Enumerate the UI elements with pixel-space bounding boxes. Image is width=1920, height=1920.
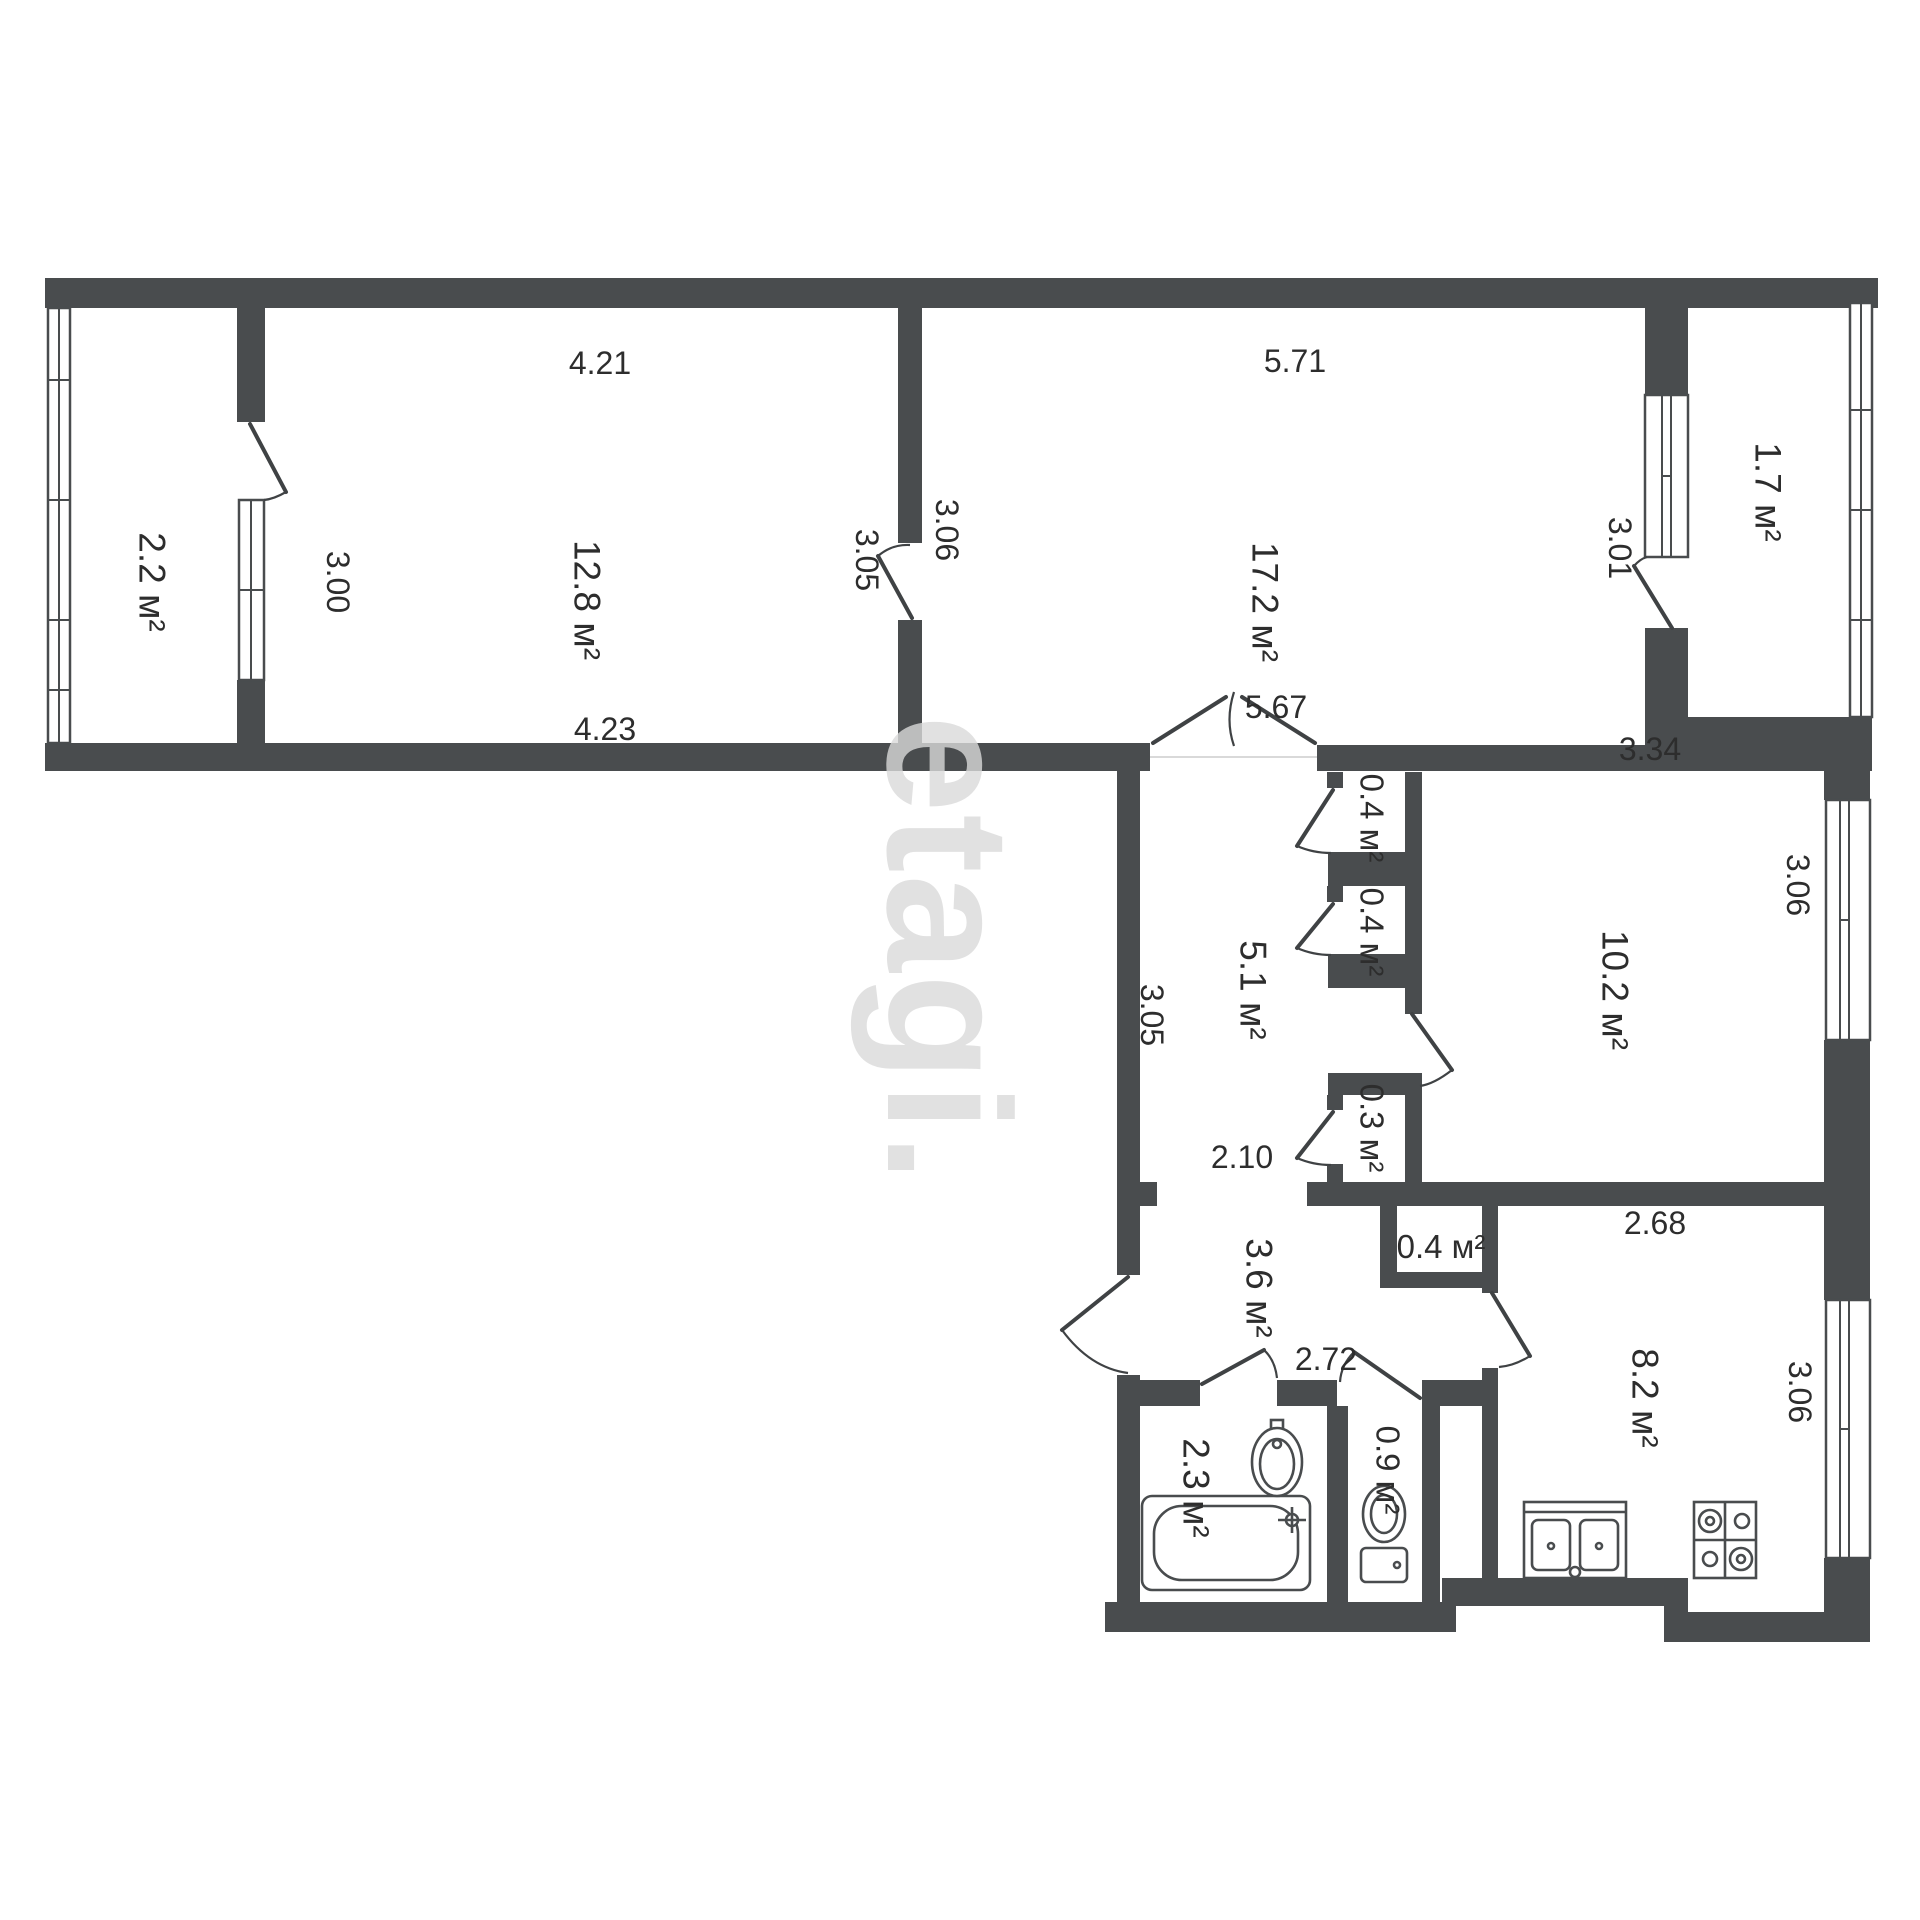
wall: [1645, 302, 1688, 395]
wall: [1277, 1380, 1337, 1406]
room-label-kitchen: 8.2 м²: [1625, 1348, 1666, 1447]
room-label-balcony-left: 2.2 м²: [132, 532, 173, 631]
door-balcony-left: [250, 424, 286, 500]
wall: [1824, 743, 1870, 800]
wall: [1380, 1272, 1498, 1288]
wall: [898, 308, 922, 543]
floor-plan-page: etagi. 2.2 м² 12.8 м² 17.2 м² 1.7 м² 5.1…: [0, 0, 1920, 1920]
window-balcony-left: [48, 308, 70, 743]
dim-kitchen-side: 3.06: [1782, 1361, 1818, 1423]
door-entrance: [1062, 1277, 1128, 1373]
wall: [1824, 1040, 1870, 1300]
dim-kitchen-top: 2.68: [1624, 1205, 1686, 1241]
door-bathroom: [1202, 1350, 1277, 1384]
window-hall-balcony: [1645, 395, 1688, 557]
floor-plan: etagi. 2.2 м² 12.8 м² 17.2 м² 1.7 м² 5.1…: [0, 0, 1920, 1920]
wall: [1140, 1380, 1200, 1406]
room-label-hall-big: 17.2 м²: [1245, 542, 1286, 662]
wall: [1327, 772, 1343, 788]
watermark-text: etagi.: [850, 715, 1045, 1184]
dim-room2-top: 5.71: [1264, 343, 1326, 379]
wall: [1482, 1368, 1498, 1606]
wall: [1117, 1375, 1140, 1630]
wall: [1442, 1578, 1688, 1606]
wall: [45, 278, 1878, 308]
door-closet-top: [1297, 790, 1333, 853]
room-label-hallway: 3.6 м²: [1239, 1238, 1280, 1337]
door-closet-small: [1297, 1112, 1333, 1165]
dim-corridor-depth: 3.05: [1134, 984, 1170, 1046]
dim-corridor-width: 2.10: [1211, 1139, 1273, 1175]
door-balcony-right: [1634, 557, 1672, 628]
wall: [1105, 1602, 1456, 1632]
bathroom-sink: [1252, 1420, 1302, 1496]
room-label-closet-small: 0.3 м²: [1354, 1084, 1391, 1173]
room-label-closet-kitchen: 0.4 м²: [1397, 1228, 1486, 1265]
dim-balcony-left-door: 3.00: [320, 551, 356, 613]
dim-room2-left: 3.06: [929, 499, 965, 561]
room-label-balcony-right: 1.7 м²: [1748, 442, 1789, 541]
room-label-closet-top: 0.4 м²: [1354, 774, 1391, 863]
window-balcony-right: [1850, 303, 1872, 717]
wall: [1327, 886, 1343, 902]
wall: [1117, 1182, 1157, 1206]
wall: [237, 308, 265, 422]
bathtub: [1142, 1496, 1310, 1590]
wall: [1317, 745, 1872, 771]
wall: [1327, 1164, 1343, 1182]
door-kitchen: [1492, 1293, 1530, 1367]
dim-hallway-width: 2.72: [1295, 1341, 1357, 1377]
stove: [1694, 1502, 1756, 1578]
wall: [237, 680, 265, 743]
dimension-labels: 4.21 4.23 3.00 3.05 3.06 5.71 3.01 5.67 …: [320, 343, 1818, 1423]
wall: [1327, 1095, 1343, 1110]
wall: [1307, 1182, 1824, 1206]
wall: [1405, 1088, 1422, 1182]
dim-room1-door: 3.05: [849, 529, 885, 591]
room-label-closet-mid: 0.4 м²: [1354, 888, 1391, 977]
room-label-bathroom: 2.3 м²: [1176, 1438, 1217, 1537]
room-label-bedroom: 10.2 м²: [1595, 930, 1636, 1050]
window-kitchen: [1826, 1300, 1870, 1558]
dim-room1-bottom: 4.23: [574, 711, 636, 747]
room-label-living: 12.8 м²: [567, 540, 608, 660]
dim-room1-top: 4.21: [569, 345, 631, 381]
window-bedroom: [1826, 800, 1870, 1040]
dim-opening-width: 5.67: [1245, 689, 1307, 725]
door-closet-mid: [1297, 904, 1333, 955]
wall: [1688, 717, 1872, 747]
room-label-corridor: 5.1 м²: [1233, 940, 1274, 1039]
room-label-toilet: 0.9 м²: [1370, 1426, 1407, 1515]
wall: [1824, 1558, 1870, 1642]
kitchen-sink: [1524, 1502, 1626, 1578]
window-living-balcony: [239, 500, 264, 680]
wall: [1422, 1380, 1440, 1630]
dim-bedroom-top: 3.34: [1619, 731, 1681, 767]
dim-bedroom-side: 3.06: [1780, 854, 1816, 916]
wall: [1327, 1406, 1348, 1630]
dim-balcony-right-door: 3.01: [1602, 517, 1638, 579]
wall: [1645, 628, 1688, 745]
